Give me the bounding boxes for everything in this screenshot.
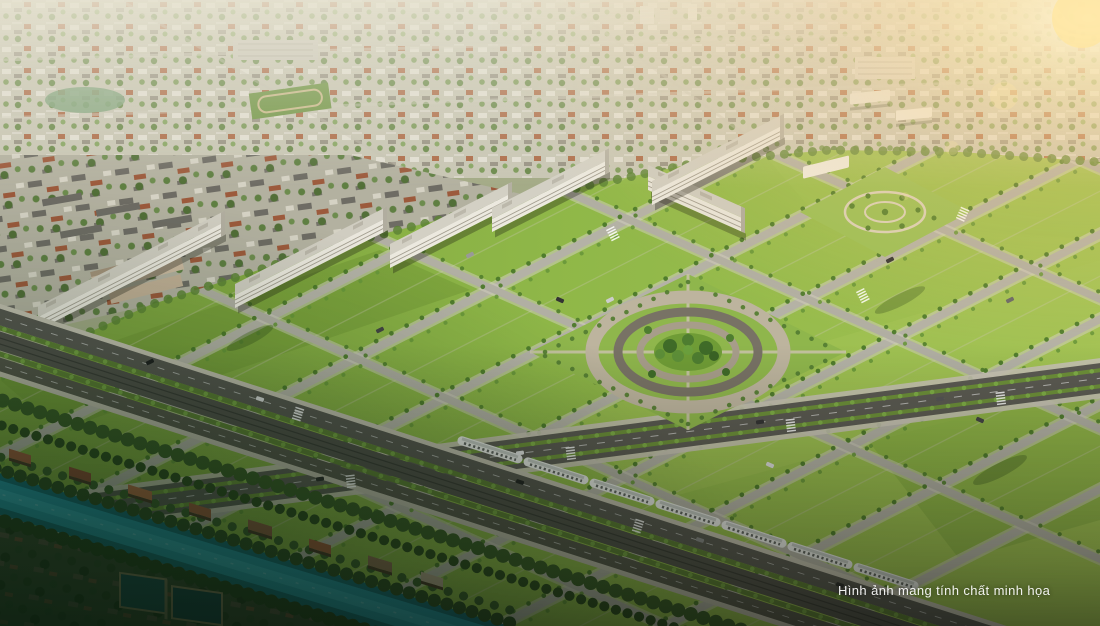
render-canvas: , xyxy=(0,0,1100,626)
aerial-render: , xyxy=(0,0,1100,626)
caption-watermark: Hình ảnh mang tính chất minh họa xyxy=(838,584,1050,598)
corner-shadow xyxy=(0,0,1100,626)
